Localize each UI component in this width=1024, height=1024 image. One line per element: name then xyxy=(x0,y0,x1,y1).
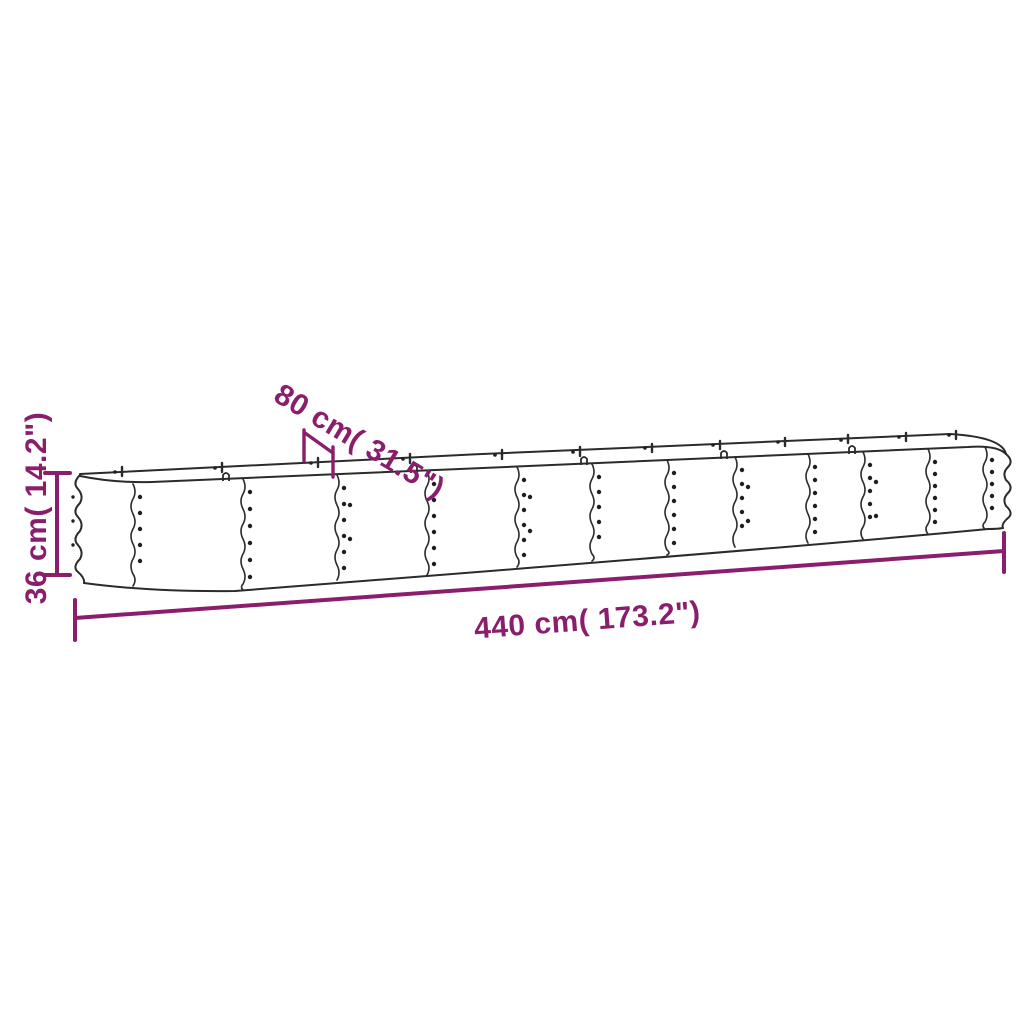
panel-seams xyxy=(131,447,987,590)
diagram-canvas: 36 cm( 14.2") 80 cm( 31.5") 440 cm( 173.… xyxy=(0,0,1024,1024)
length-dimension-label: 440 cm( 173.2") xyxy=(473,596,702,646)
planter-drawing xyxy=(73,431,1011,591)
width-dimension-label: 80 cm( 31.5") xyxy=(268,378,450,505)
right-corrugated-end xyxy=(1003,454,1011,528)
planter-dimension-diagram: 36 cm( 14.2") 80 cm( 31.5") 440 cm( 173.… xyxy=(0,0,1024,1024)
height-dimension-label: 36 cm( 14.2") xyxy=(20,412,53,605)
left-corrugated-end xyxy=(75,475,84,583)
length-dimension: 440 cm( 173.2") xyxy=(75,533,1004,645)
width-dimension: 80 cm( 31.5") xyxy=(268,378,450,505)
height-dimension: 36 cm( 14.2") xyxy=(20,412,70,605)
rim-back-edge xyxy=(80,434,1006,474)
